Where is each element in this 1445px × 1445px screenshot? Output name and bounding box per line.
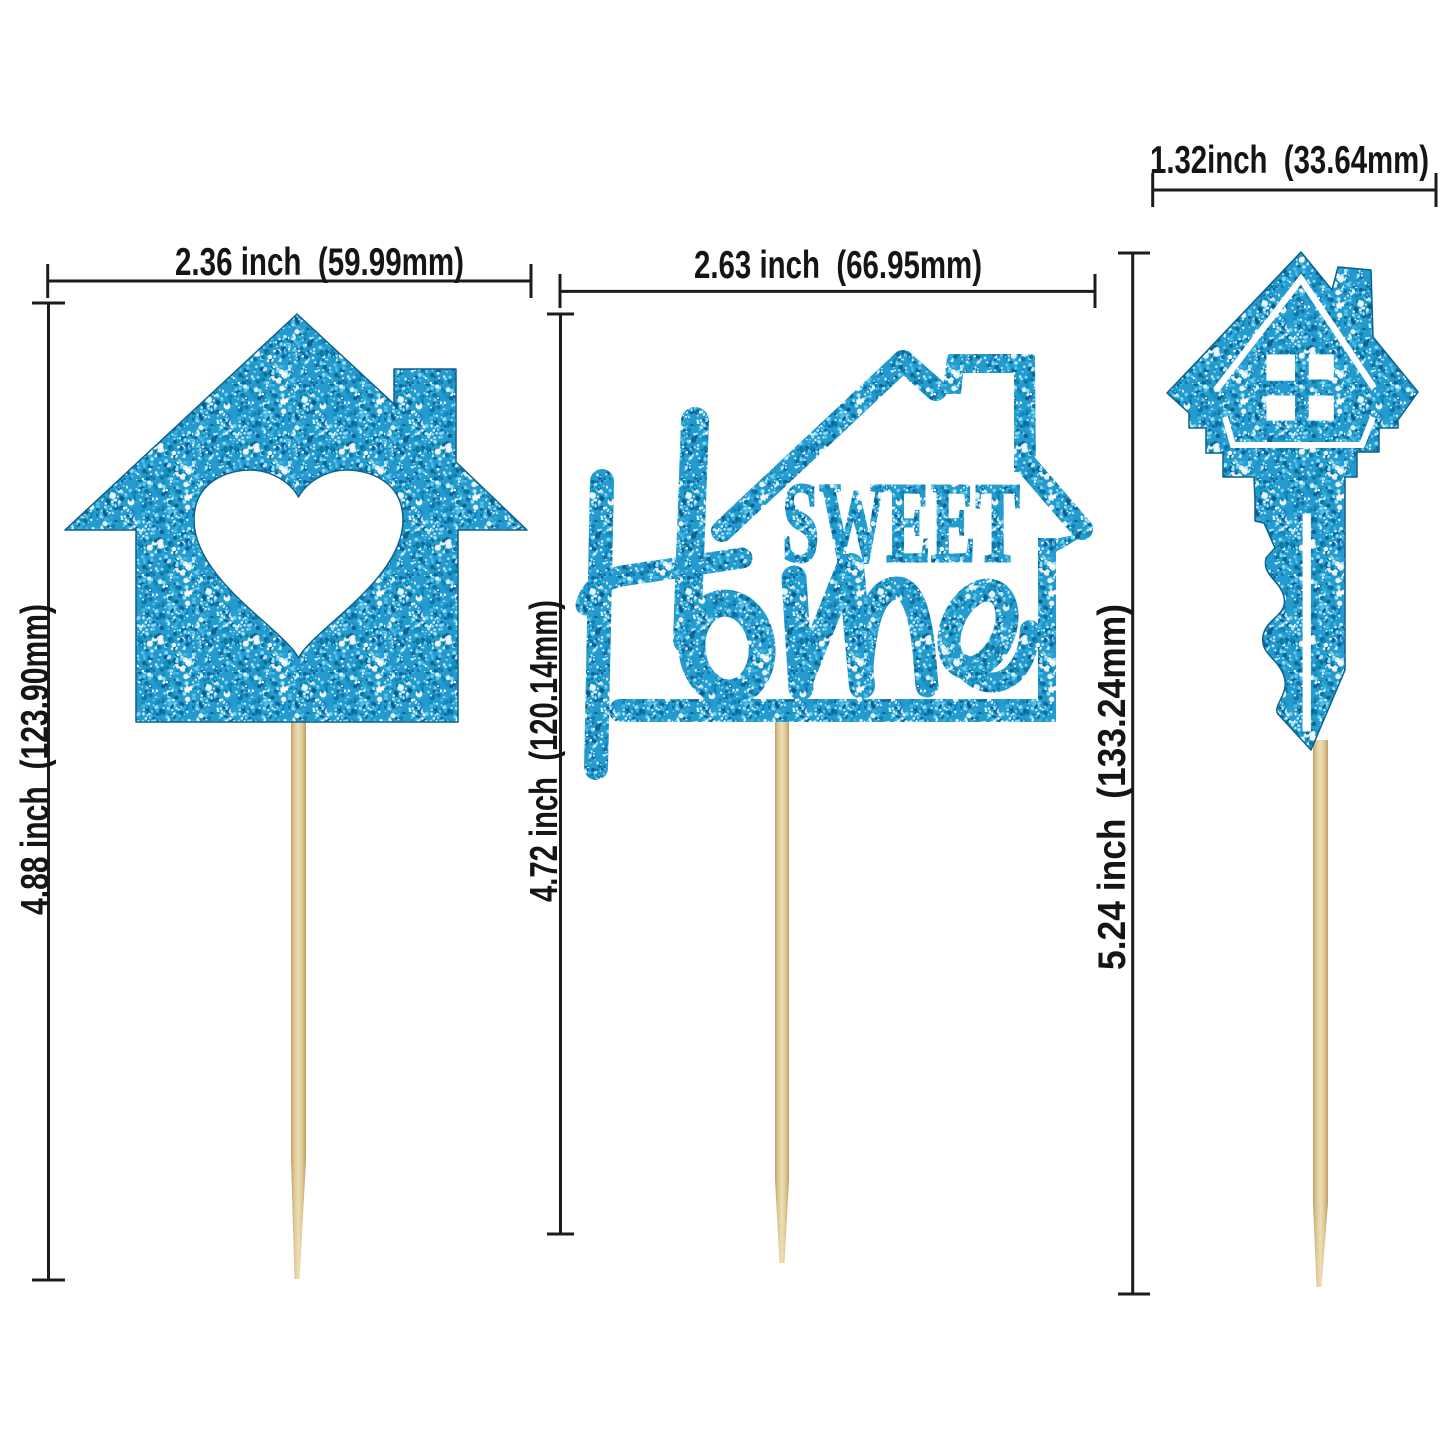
svg-text:SWEET: SWEET: [782, 459, 1020, 586]
svg-text:2.36 inch (59.99mm): 2.36 inch (59.99mm): [175, 241, 464, 284]
svg-text:5.24 inch (133.24mm): 5.24 inch (133.24mm): [1091, 604, 1134, 970]
svg-text:4.72 inch (120.14mm): 4.72 inch (120.14mm): [523, 600, 566, 902]
svg-text:2.63 inch (66.95mm): 2.63 inch (66.95mm): [694, 244, 982, 287]
svg-text:4.88 inch (123.90mm): 4.88 inch (123.90mm): [14, 604, 57, 915]
svg-text:1.32inch (33.64mm): 1.32inch (33.64mm): [1150, 139, 1429, 182]
